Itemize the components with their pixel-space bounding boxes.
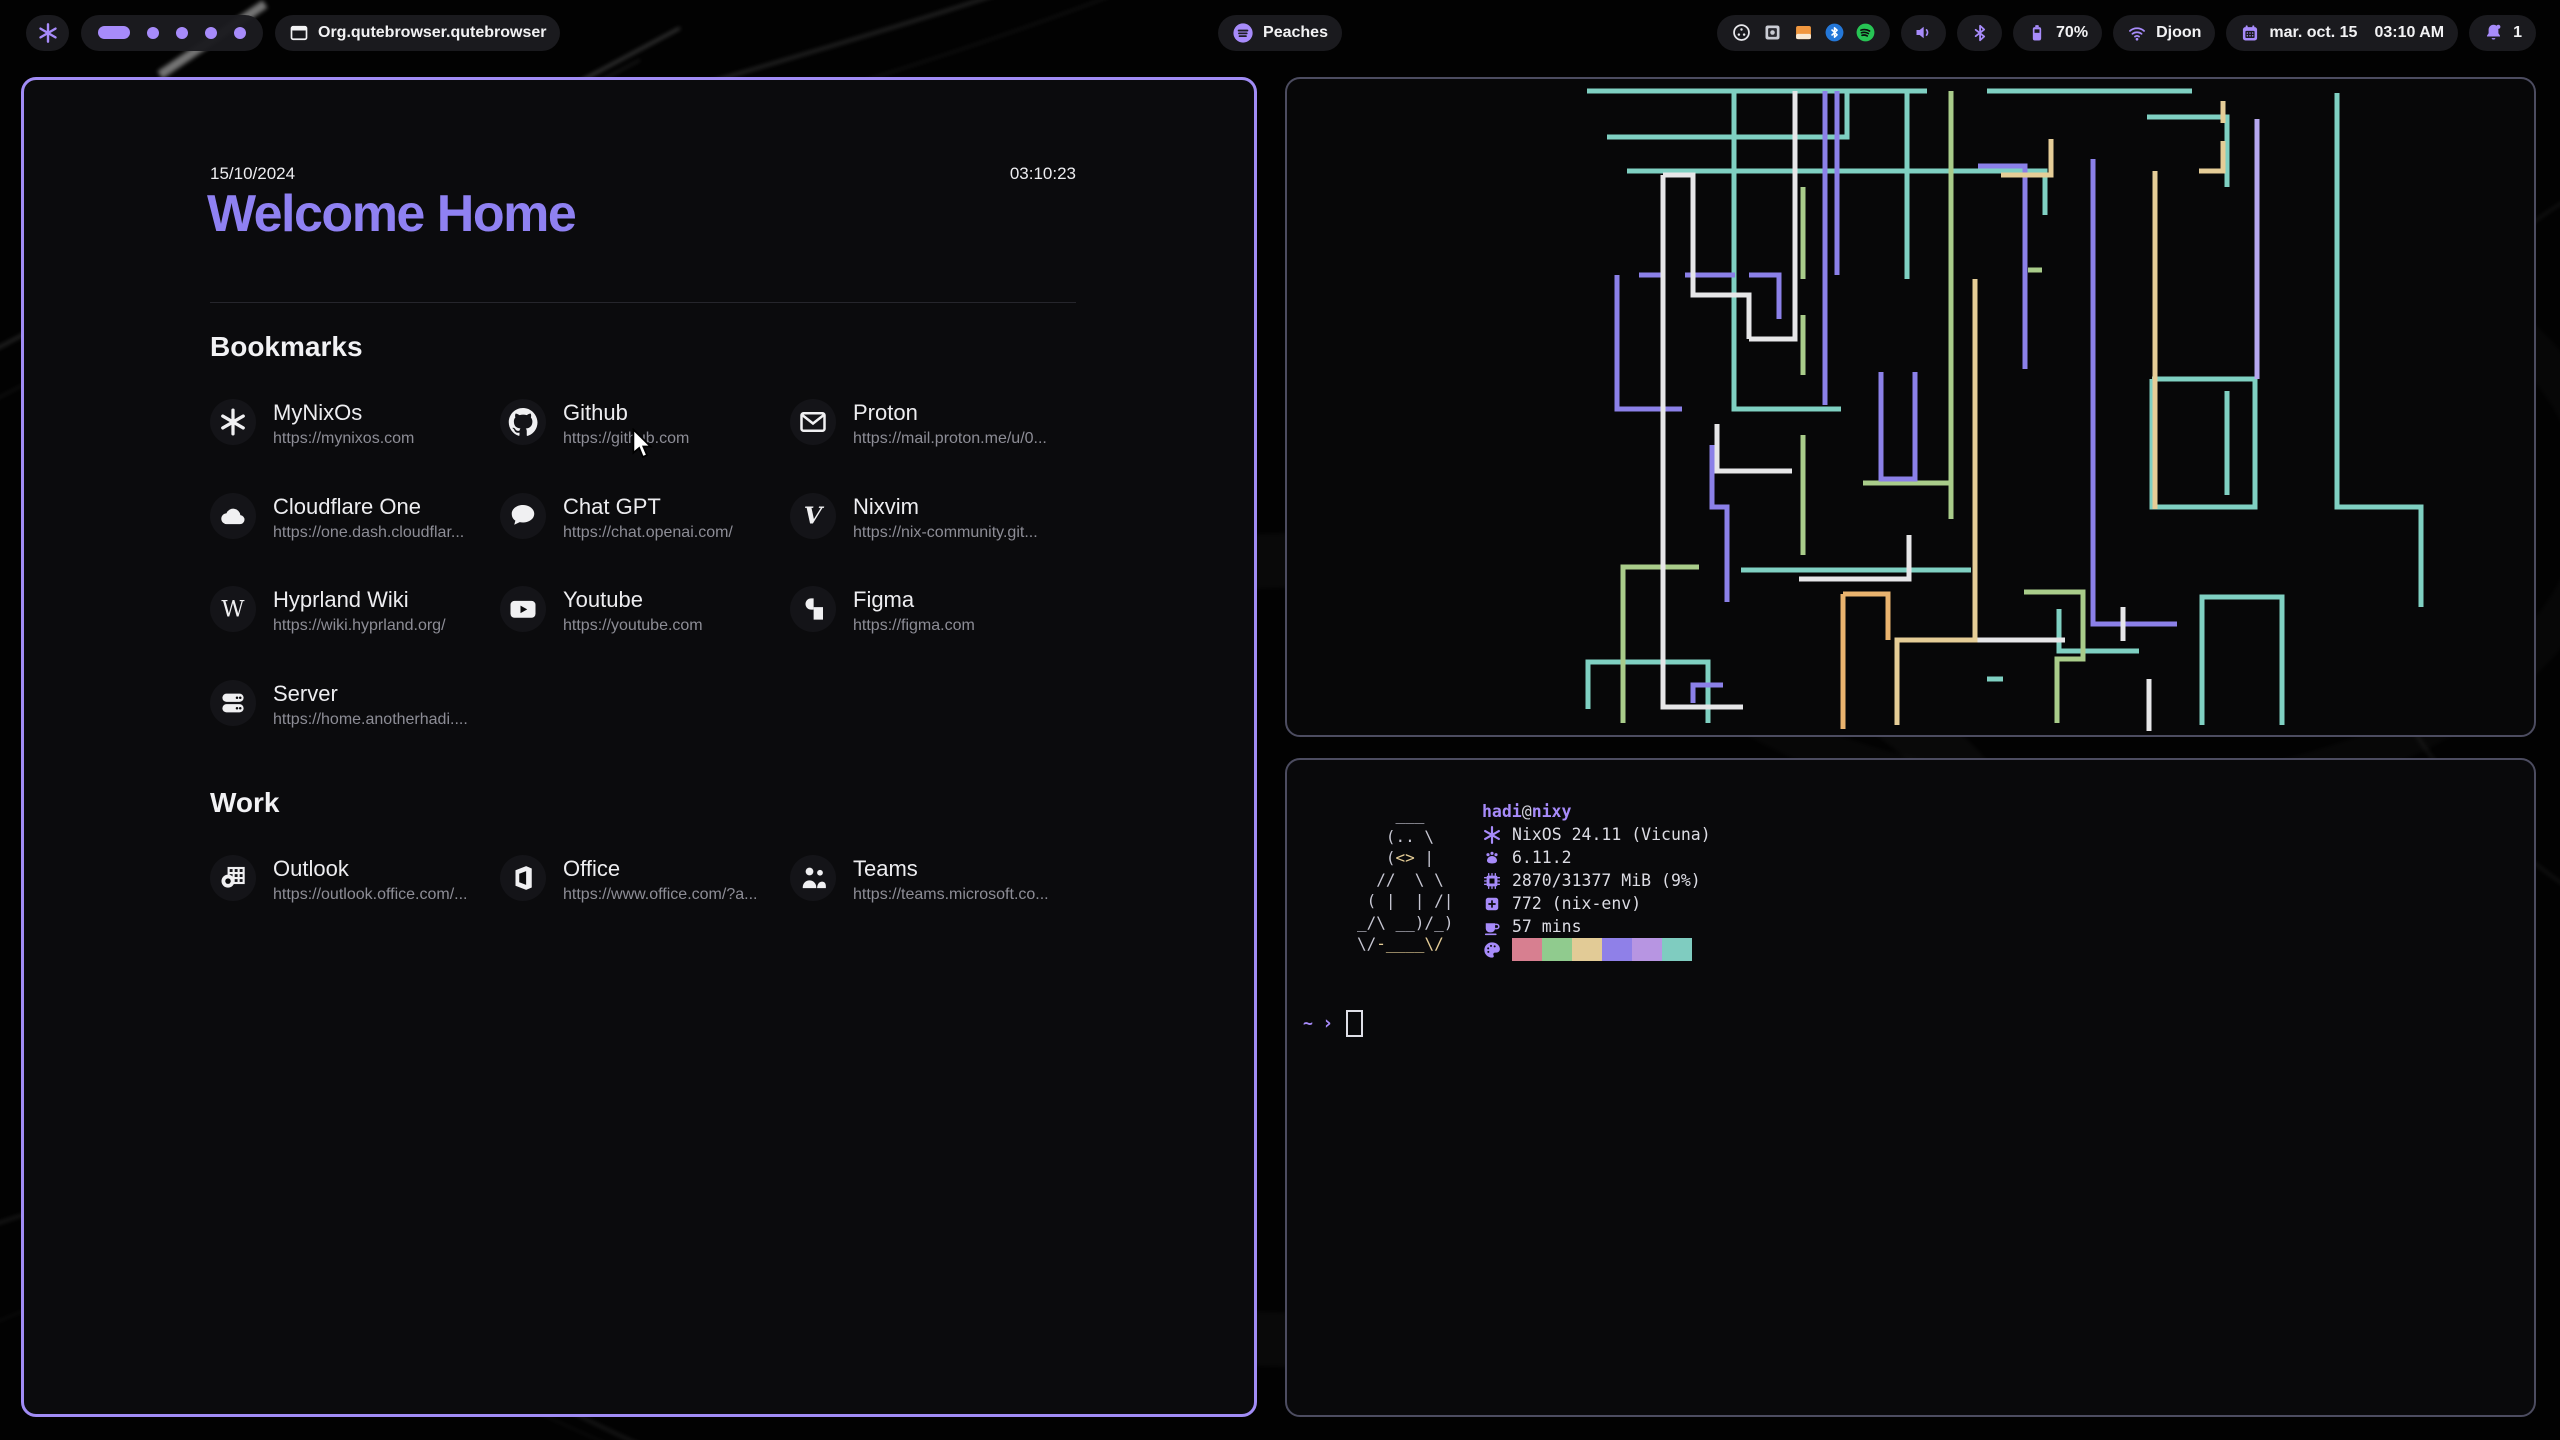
fetch-row-os: NixOS 24.11 (Vicuna)	[1482, 823, 1711, 846]
bookmark-name: Office	[563, 856, 757, 881]
fetch-at: @	[1522, 800, 1532, 823]
media-player-module[interactable]: Peaches	[1218, 15, 1342, 51]
wifi-icon	[2127, 23, 2147, 43]
bookmark-url: https://chat.openai.com/	[563, 522, 733, 543]
active-window-title: Org.qutebrowser.qutebrowser	[318, 24, 546, 42]
spotify-icon	[1232, 22, 1254, 44]
fetch-row-kernel: 6.11.2	[1482, 846, 1711, 869]
bookmark-server[interactable]: Serverhttps://home.anotherhadi....	[210, 680, 500, 774]
wiki-icon: W	[210, 586, 256, 632]
tux-ascii-art: ___ (.. \ (<> | // \ \ ( | | /| _/\ __)/…	[1357, 804, 1453, 955]
section-heading: Work	[210, 786, 1080, 819]
nix-launcher-button[interactable]	[26, 15, 69, 51]
section-heading: Bookmarks	[210, 330, 1080, 363]
fetch-row-palette	[1482, 938, 1711, 961]
terminal-cursor	[1346, 1010, 1363, 1037]
bookmark-name: Hyprland Wiki	[273, 587, 446, 612]
system-tray[interactable]	[1717, 15, 1890, 51]
clock-date: mar. oct. 15	[2269, 24, 2357, 42]
page-title: Welcome Home	[207, 184, 575, 244]
spotify-tray-icon[interactable]	[1855, 22, 1876, 43]
battery-module[interactable]: 70%	[2013, 15, 2102, 51]
palette-swatch	[1572, 938, 1602, 961]
bookmark-hyprland-wiki[interactable]: WHyprland Wikihttps://wiki.hyprland.org/	[210, 586, 500, 680]
bookmark-name: Teams	[853, 856, 1049, 881]
cloud-icon	[210, 493, 256, 539]
bookmark-url: https://wiki.hyprland.org/	[273, 615, 446, 636]
palette-swatch	[1602, 938, 1632, 961]
packages-icon	[1482, 894, 1502, 914]
pipes-terminal-window	[1285, 77, 2536, 737]
section-bookmarks: BookmarksMyNixOshttps://mynixos.comGithu…	[210, 330, 1080, 773]
desktop: Org.qutebrowser.qutebrowser Peaches 70%	[0, 0, 2560, 1440]
bookmark-name: Cloudflare One	[273, 494, 464, 519]
qutebrowser-window: 15/10/2024 03:10:23 Welcome Home Bookmar…	[21, 77, 1257, 1417]
prompt-cwd: ~	[1303, 1012, 1313, 1035]
vim-icon: V	[790, 493, 836, 539]
palette-swatch	[1662, 938, 1692, 961]
bookmark-name: Outlook	[273, 856, 467, 881]
memory-icon	[1482, 871, 1502, 891]
file-manager-tray-icon[interactable]	[1793, 22, 1814, 43]
notifications-module[interactable]: 1	[2469, 15, 2536, 51]
bookmark-cloudflare-one[interactable]: Cloudflare Onehttps://one.dash.cloudflar…	[210, 493, 500, 587]
notification-count: 1	[2513, 24, 2522, 42]
prompt-chevron: ›	[1322, 1012, 1333, 1035]
bluetooth-tray-icon[interactable]	[1824, 22, 1845, 43]
outlook-icon	[210, 855, 256, 901]
youtube-icon	[500, 586, 546, 632]
bookmark-name: MyNixOs	[273, 400, 414, 425]
bookmark-url: https://teams.microsoft.co...	[853, 884, 1049, 905]
bookmark-name: Server	[273, 681, 468, 706]
palette-icon	[1482, 940, 1502, 960]
fetch-row-packages: 772 (nix-env)	[1482, 892, 1711, 915]
bookmark-youtube[interactable]: Youtubehttps://youtube.com	[500, 586, 790, 680]
bookmark-url: https://home.anotherhadi....	[273, 709, 468, 730]
bookmark-mynixos[interactable]: MyNixOshttps://mynixos.com	[210, 399, 500, 493]
bookmark-name: Github	[563, 400, 689, 425]
bookmark-url: https://mail.proton.me/u/0...	[853, 428, 1047, 449]
bookmark-name: Chat GPT	[563, 494, 733, 519]
bookmark-url: https://one.dash.cloudflar...	[273, 522, 464, 543]
status-bar: Org.qutebrowser.qutebrowser Peaches 70%	[0, 14, 2560, 51]
startpage-date: 15/10/2024	[210, 164, 295, 184]
mouse-cursor	[630, 428, 656, 460]
teams-icon	[790, 855, 836, 901]
section-work: WorkOutlookhttps://outlook.office.com/..…	[210, 786, 1080, 949]
workspace-dot[interactable]	[176, 27, 188, 39]
bookmark-outlook[interactable]: Outlookhttps://outlook.office.com/...	[210, 855, 500, 949]
workspace-dot[interactable]	[147, 27, 159, 39]
battery-icon	[2027, 23, 2047, 43]
fetch-user: hadi	[1482, 800, 1522, 823]
workspace-dot[interactable]	[205, 27, 217, 39]
shell-prompt[interactable]: ~ ›	[1303, 1010, 1363, 1037]
bookmark-name: Youtube	[563, 587, 703, 612]
media-track-label: Peaches	[1263, 24, 1328, 42]
figma-icon	[790, 586, 836, 632]
bookmark-office[interactable]: Officehttps://www.office.com/?a...	[500, 855, 790, 949]
bookmark-name: Nixvim	[853, 494, 1038, 519]
fastfetch-output: hadi@nixyNixOS 24.11 (Vicuna)6.11.22870/…	[1482, 800, 1711, 961]
speaker-icon	[1913, 22, 1934, 43]
svg-text:V: V	[804, 501, 825, 529]
office-icon	[500, 855, 546, 901]
nix-icon	[210, 399, 256, 445]
bookmark-url: https://outlook.office.com/...	[273, 884, 467, 905]
palette-swatch	[1512, 938, 1542, 961]
bookmark-proton[interactable]: Protonhttps://mail.proton.me/u/0...	[790, 399, 1080, 493]
bell-icon	[2483, 22, 2504, 43]
calendar-icon	[2240, 23, 2260, 43]
palette-swatch	[1632, 938, 1662, 961]
uptime-icon	[1482, 917, 1502, 937]
divider	[210, 302, 1076, 303]
battery-percent: 70%	[2056, 24, 2088, 42]
chat-icon	[500, 493, 546, 539]
startpage-time: 03:10:23	[1010, 164, 1076, 184]
active-window-module[interactable]: Org.qutebrowser.qutebrowser	[275, 15, 560, 51]
pipes-screensaver	[1287, 79, 2534, 735]
bookmark-figma[interactable]: Figmahttps://figma.com	[790, 586, 1080, 680]
window-icon	[289, 23, 309, 43]
svg-text:W: W	[221, 597, 245, 623]
bluetooth-module[interactable]	[1957, 15, 2002, 51]
os-icon	[1482, 825, 1502, 845]
bookmark-chat-gpt[interactable]: Chat GPThttps://chat.openai.com/	[500, 493, 790, 587]
password-vault-tray-icon[interactable]	[1762, 22, 1783, 43]
bookmark-name: Figma	[853, 587, 975, 612]
bookmark-name: Proton	[853, 400, 1047, 425]
bookmark-url: https://www.office.com/?a...	[563, 884, 757, 905]
kernel-icon	[1482, 848, 1502, 868]
fetch-terminal-window: ___ (.. \ (<> | // \ \ ( | | /| _/\ __)/…	[1285, 758, 2536, 1417]
bookmark-url: https://mynixos.com	[273, 428, 414, 449]
bookmark-url: https://youtube.com	[563, 615, 703, 636]
fetch-row-uptime: 57 mins	[1482, 915, 1711, 938]
workspace-switcher[interactable]	[81, 15, 263, 51]
bookmark-url: https://github.com	[563, 428, 689, 449]
nix-snowflake-icon	[37, 22, 59, 44]
clock-module[interactable]: mar. oct. 15 03:10 AM	[2226, 15, 2458, 51]
bookmark-url: https://nix-community.git...	[853, 522, 1038, 543]
network-ssid: Djoon	[2156, 24, 2201, 42]
workspace-active[interactable]	[98, 26, 130, 39]
bluetooth-icon	[1970, 23, 1990, 43]
bookmark-nixvim[interactable]: VNixvimhttps://nix-community.git...	[790, 493, 1080, 587]
github-icon	[500, 399, 546, 445]
fetch-host: nixy	[1532, 800, 1572, 823]
clock-time: 03:10 AM	[2374, 24, 2444, 42]
volume-module[interactable]	[1901, 15, 1946, 51]
workspace-dot[interactable]	[234, 27, 246, 39]
screen-recorder-tray-icon[interactable]	[1731, 22, 1752, 43]
palette-swatch	[1542, 938, 1572, 961]
mail-icon	[790, 399, 836, 445]
network-module[interactable]: Djoon	[2113, 15, 2215, 51]
bookmark-teams[interactable]: Teamshttps://teams.microsoft.co...	[790, 855, 1080, 949]
bookmark-url: https://figma.com	[853, 615, 975, 636]
fetch-row-memory: 2870/31377 MiB (9%)	[1482, 869, 1711, 892]
server-icon	[210, 680, 256, 726]
